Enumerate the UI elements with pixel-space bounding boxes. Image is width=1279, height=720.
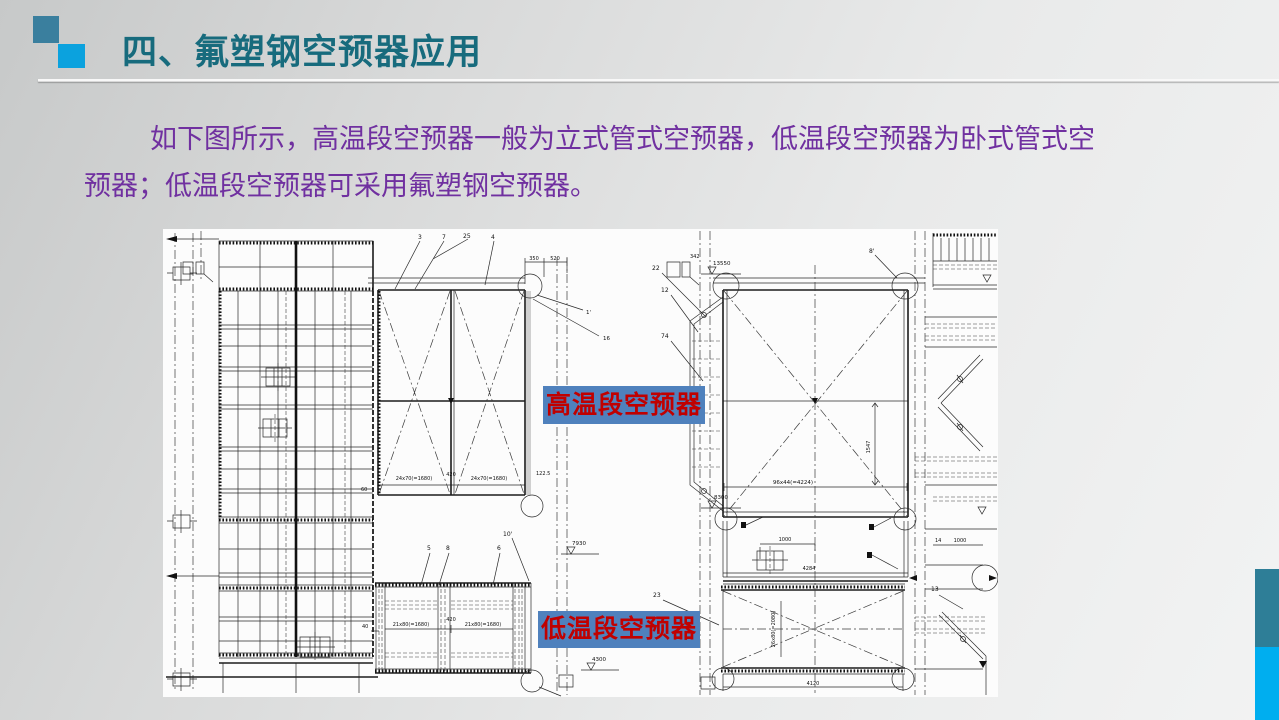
body-line-2: 预器；低温段空预器可采用氟塑钢空预器。	[84, 171, 597, 201]
dim-text: 4284	[803, 566, 816, 572]
dim-text: 4	[491, 234, 495, 241]
dim-text: 122.5	[536, 471, 550, 477]
body-line-1: 如下图所示，高温段空预器一般为立式管式空预器，低温段空预器为卧式管式空	[84, 124, 1095, 154]
dim-text: 7930	[572, 541, 586, 547]
dim-text: 26x80(=2080)	[771, 611, 777, 648]
dim-text: 420	[446, 617, 456, 623]
body-paragraph: 如下图所示，高温段空预器一般为立式管式空预器，低温段空预器为卧式管式空 预器；低…	[84, 116, 1224, 210]
dim-text: 3	[418, 234, 422, 241]
dim-text: 420	[446, 472, 456, 478]
right-large-panel	[662, 255, 925, 693]
callout-low-temp: 低温段空预器	[538, 611, 700, 648]
dim-text: 4300	[592, 657, 606, 663]
dim-text: 16	[603, 336, 610, 342]
engineering-drawing-figure: 3 7 25 4 350 520 342 13550 1' 16 60 24x7…	[163, 229, 998, 697]
dim-text: 13	[931, 586, 939, 593]
dim-text: 1000	[779, 537, 792, 543]
left-centerlines	[166, 231, 219, 691]
dim-text: 24x70(=1680)	[471, 476, 508, 482]
right-duct-strip	[909, 231, 998, 695]
dim-text: 8'	[869, 248, 875, 255]
dim-text: 520	[550, 256, 560, 262]
high-temp-section	[368, 239, 741, 670]
dim-text: 14	[935, 538, 941, 544]
dim-text: 5	[427, 545, 431, 552]
dim-text: 342	[690, 254, 700, 260]
dim-text: 23	[653, 592, 661, 599]
dim-text: 7	[442, 234, 446, 241]
left-grid-structure	[166, 241, 378, 693]
dim-text: 21x80(=1680)	[465, 622, 502, 628]
dim-text: 40	[362, 624, 368, 630]
dim-text: 22	[652, 265, 660, 272]
dim-text: 24x70(=1680)	[396, 476, 433, 482]
slide: { "slide": { "title": "四、氟塑钢空预器应用", "bod…	[0, 0, 1279, 720]
callout-high-temp: 高温段空预器	[543, 386, 705, 424]
dim-text: 25	[463, 233, 471, 240]
dim-text: 60	[361, 487, 367, 493]
dim-text: 8300	[714, 495, 728, 501]
dim-text: 13550	[713, 261, 731, 267]
dim-text: 8	[446, 545, 450, 552]
dim-text: 4120	[807, 681, 820, 687]
edge-bar-teal	[1255, 569, 1279, 647]
low-temp-section	[371, 495, 715, 696]
dim-text: 96x44(=4224)	[773, 480, 813, 486]
dim-text: 74	[661, 333, 669, 340]
accent-square-teal	[33, 16, 59, 43]
dim-text: 1000	[954, 538, 967, 544]
page-title: 四、氟塑钢空预器应用	[122, 24, 482, 75]
edge-bar-blue	[1255, 647, 1279, 720]
dim-text: 10'	[503, 531, 513, 538]
accent-square-blue	[58, 44, 85, 68]
dim-text: 21x80(=1680)	[393, 622, 430, 628]
dim-text: 350	[529, 256, 539, 262]
dim-text: 12	[661, 287, 669, 294]
title-divider	[38, 79, 1279, 82]
dim-text: 1547	[866, 441, 872, 454]
dim-text: 6	[497, 545, 501, 552]
dim-text: 1'	[586, 310, 591, 316]
